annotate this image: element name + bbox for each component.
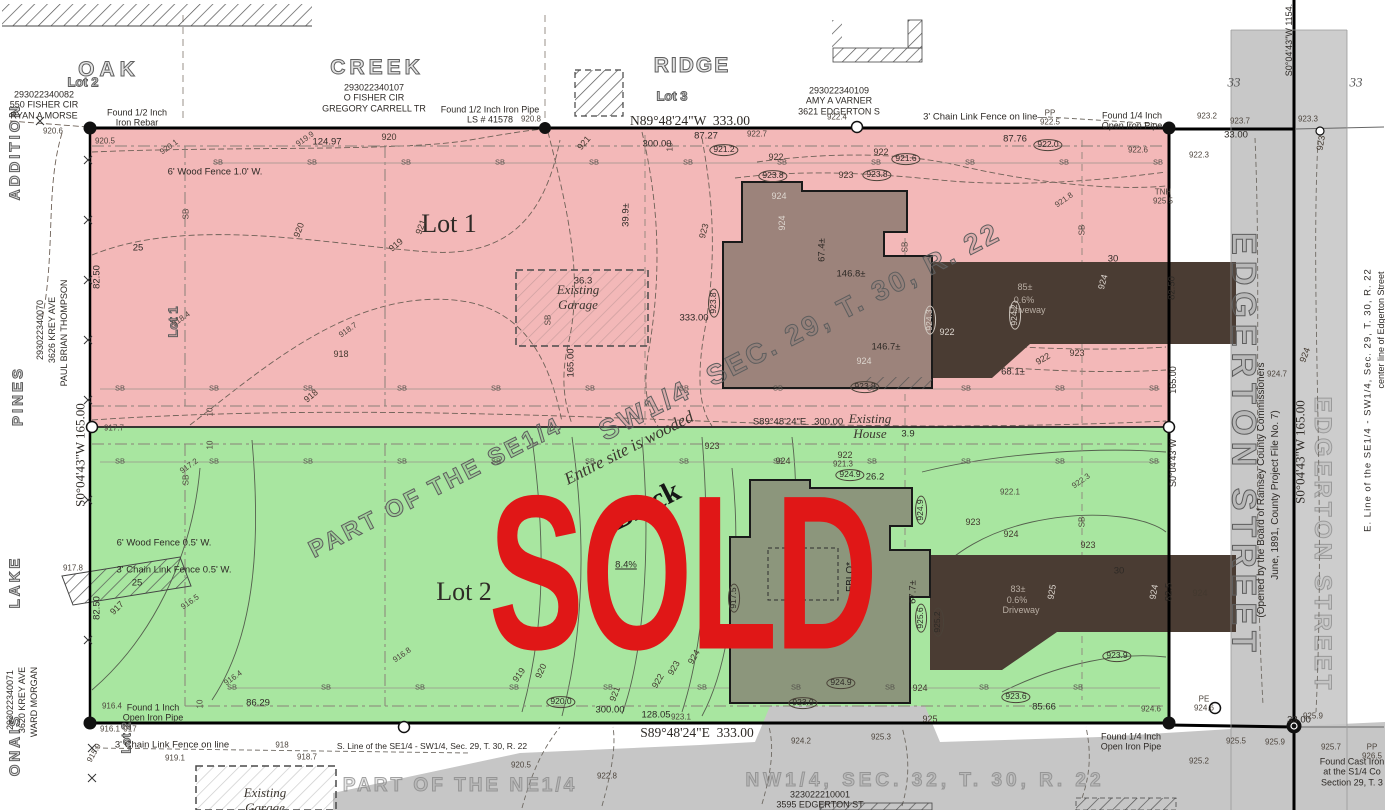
survey-plat-map: OAKCREEKRIDGELot 2Lot 3ADDITIONPINESLAKE… bbox=[0, 0, 1385, 810]
edgerton-street-east-half bbox=[1294, 30, 1347, 810]
sold-stamp: SOLD bbox=[489, 447, 876, 700]
house1-porch-hatch bbox=[866, 377, 932, 389]
hatched-box-top-center bbox=[575, 70, 623, 116]
existing-garage-south bbox=[196, 766, 336, 810]
hatched-strip-top-left bbox=[2, 4, 312, 26]
fence-marks bbox=[36, 117, 96, 782]
existing-house-lot1 bbox=[723, 182, 932, 388]
neighbor-building-hatch bbox=[832, 20, 922, 62]
existing-garage-outline bbox=[516, 270, 648, 346]
hatched-box-bottom-2 bbox=[1076, 798, 1176, 810]
hatched-box-bottom-1 bbox=[820, 803, 932, 810]
